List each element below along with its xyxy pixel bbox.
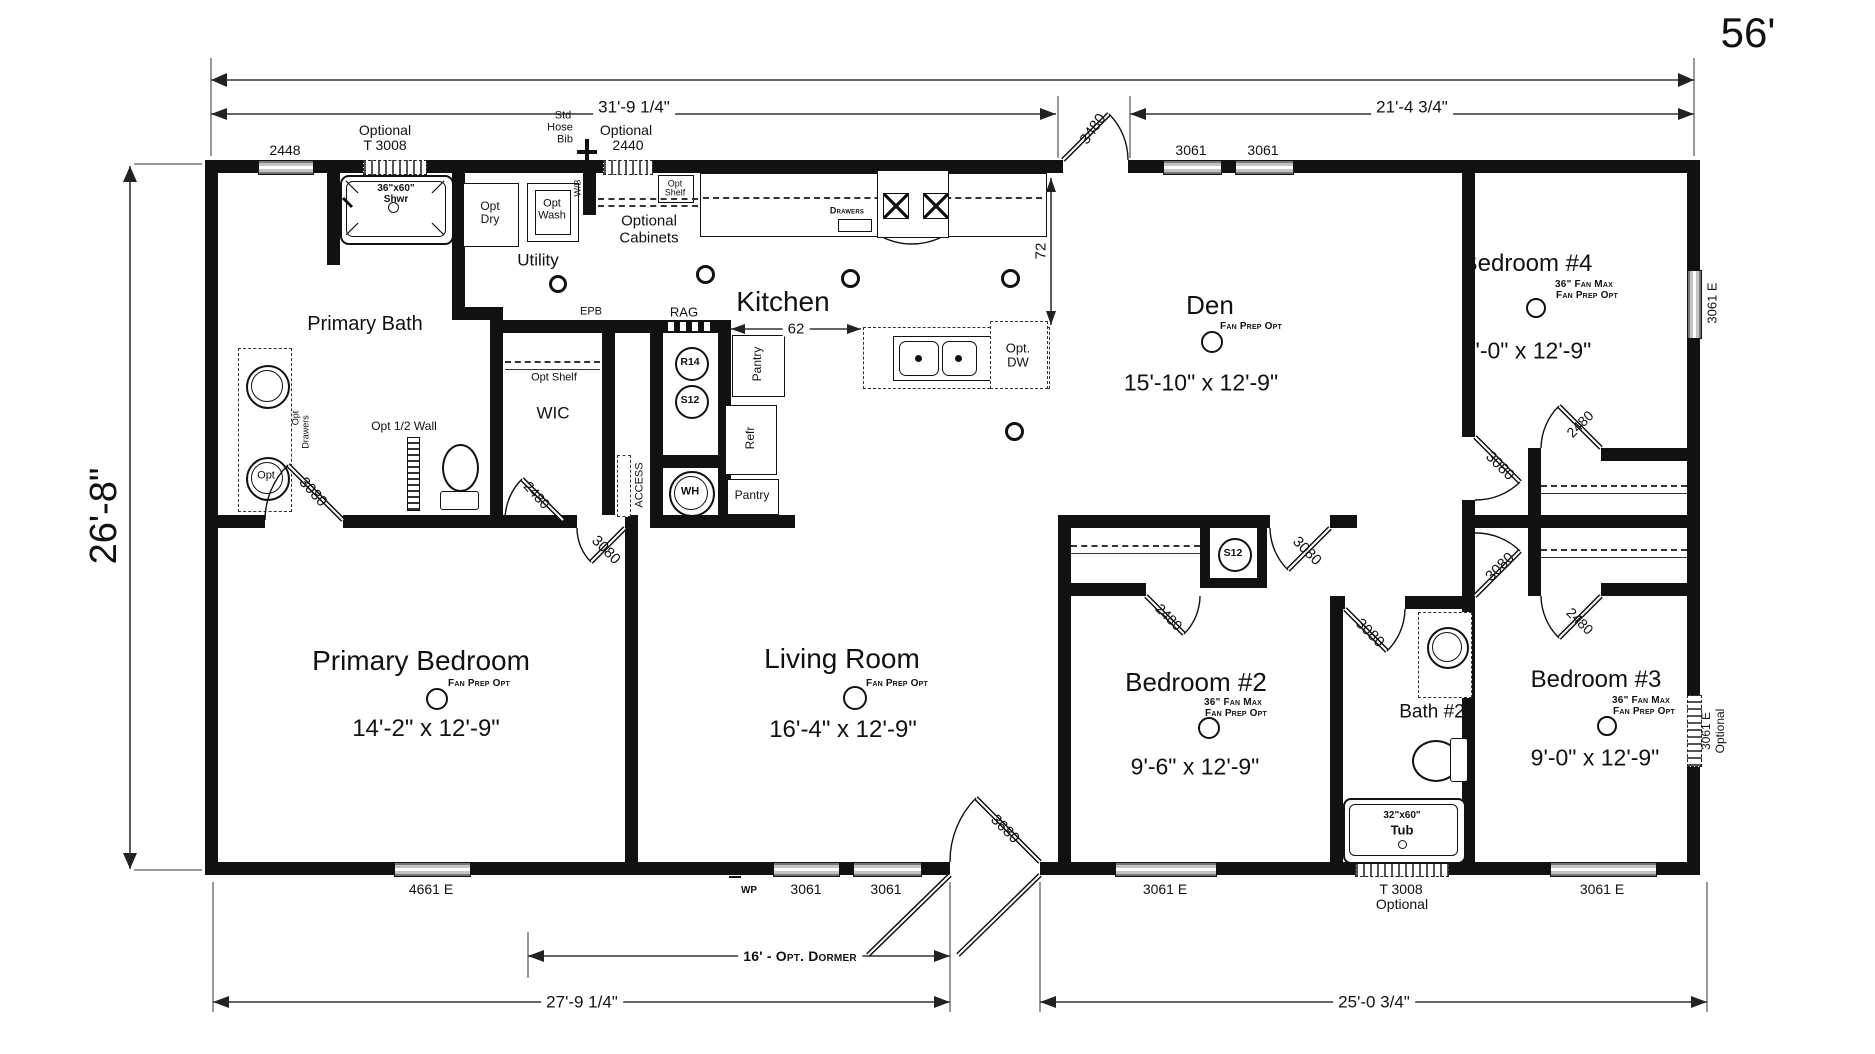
dim-top-right: 21'-4 3/4" [1371,99,1453,116]
window-3061e-bedroom4 [1687,270,1702,339]
sink2-opt-label: Opt [257,471,275,482]
door-label-3080-den-hall: 3080 [1290,534,1324,568]
window-label-3061e-b3r-2: Optional [1714,709,1726,754]
wic-shelf-label: Opt Shelf [528,373,580,384]
window-label-t3008-2: T 3008 [363,138,406,152]
fan-note2-bedroom2: Fan Prep Opt [1205,709,1267,719]
wp-label: WP [741,886,757,896]
window-label-2440-1: Optional [600,123,652,137]
window-label-3061-den1: 3061 [1175,143,1206,157]
vanity-label-drawers: Drawers [302,415,311,449]
window-3061-den-1 [1163,160,1222,175]
pbath-toilet-bowl [442,444,479,492]
size-den: 15'-10" x 12'-9" [1124,372,1278,395]
room-label-den: Den [1186,292,1234,318]
door-label-2480-b3-closet: 2480 [1564,605,1596,637]
overall-width-label: 56' [1721,12,1776,54]
room-label-wic: WIC [536,405,569,422]
drawer-stack [838,219,872,232]
wh-label: WH [681,487,699,498]
size-bedroom4: 9'-0" x 12'-9" [1463,340,1592,363]
opt-shelf-label-2: Shelf [665,189,686,198]
epb-label: EPB [580,307,602,318]
door-label-3680: 3680 [988,812,1022,846]
optional-cabinets-label-1: Optional [621,214,677,229]
window-label-t3008-bath-1: T 3008 [1379,882,1422,896]
r14-label: R14 [680,357,699,368]
shower-label-1: 36"x60" [377,184,414,194]
fan-note2-bedroom3: Fan Prep Opt [1613,707,1675,717]
kitchen-light-3 [1001,269,1020,288]
fan-note1-bedroom3: 36" Fan Max [1612,696,1670,706]
fan-circle-bedroom3 [1597,716,1617,736]
vanity-label-opt: Opt [292,411,301,426]
fan-note1-bedroom4: 36" Fan Max [1555,280,1613,290]
door-label-3080-pbath: 3080 [296,475,329,510]
optional-cabinets-dash2 [598,205,698,207]
room-label-bedroom3: Bedroom #3 [1531,668,1662,692]
wb-label: W/B [574,180,583,197]
hose-bib-label-3: Bib [557,135,573,146]
room-label-primary-bedroom: Primary Bedroom [312,647,530,675]
optional-cabinets-dash1 [598,198,698,200]
fan-note-living: Fan Prep Opt [866,679,928,689]
access-label: ACCESS [635,462,646,507]
window-label-3061e-b3r-1: 3061 E [1700,712,1712,750]
optional-cabinets-label-2: Cabinets [619,231,678,246]
hose-bib-label-1: Std [555,111,572,122]
room-label-living: Living Room [764,645,920,673]
window-t3008-optional [363,160,427,175]
opt-dw-label-2: DW [1007,356,1029,369]
door-label-2480-b2: 2480 [1153,601,1185,633]
window-3061-living-2 [853,862,922,877]
fan-note2-bedroom4: Fan Prep Opt [1556,291,1618,301]
s12-label: S12 [681,395,700,406]
door-label-3080-pbed: 3080 [589,533,623,567]
fan-note1-bedroom2: 36" Fan Max [1204,698,1262,708]
window-label-3061e-b3b: 3061 E [1580,882,1624,896]
access-panel [617,455,631,517]
dim-62: 62 [783,322,810,337]
window-label-4661e: 4661 E [409,882,453,896]
window-label-t3008-bath-2: Optional [1376,897,1428,911]
drawers-label: Drawers [830,207,864,216]
fan-note-primary-bedroom: Fan Prep Opt [448,679,510,689]
fan-circle-bedroom2 [1198,717,1220,739]
pantry-lower-label: Pantry [735,489,770,501]
door-label-3480: 3480 [1077,111,1108,147]
window-label-3061-den2: 3061 [1247,143,1278,157]
misc-symbols [343,139,940,877]
window-3061-living-1 [773,862,840,877]
window-label-t3008-1: Optional [359,123,411,137]
room-label-bedroom4: Bedroom #4 [1462,252,1593,276]
room-label-bedroom2: Bedroom #2 [1125,669,1267,695]
window-2448 [258,160,314,175]
dim-dormer: 16' - Opt. Dormer [738,949,862,963]
kitchen-light-1 [696,265,715,284]
dryer-label-2: Dry [481,213,500,225]
fan-note-den: Fan Prep Opt [1220,322,1282,332]
dim-top-left: 31'-9 1/4" [593,99,675,116]
tub-label-2: Tub [1391,824,1414,837]
door-label-3080-bath2: 3080 [1353,616,1387,650]
wic-rod [505,369,600,370]
size-primary-bedroom: 14'-2" x 12'-9" [352,717,500,741]
dryer-label-1: Opt [480,200,499,212]
window-label-3061e-b2: 3061 E [1143,882,1187,896]
dim-bottom-left: 27'-9 1/4" [541,994,623,1011]
fan-circle-living [843,686,867,710]
burner-right [923,193,949,219]
dim-72: 72 [1034,238,1049,265]
fan-circle-primary-bedroom [426,688,448,710]
kitchen-light-2 [841,269,860,288]
tub-label-1: 32"x60" [1383,811,1420,821]
hose-bib-label-2: Hose [547,123,573,134]
room-label-kitchen: Kitchen [736,288,829,316]
pantry-upper-label: Pantry [751,347,763,382]
rag-label: RAG [670,306,698,319]
window-3061e-bedroom2 [1115,862,1217,877]
window-label-3061-lr1: 3061 [790,882,821,896]
tub-drain [1398,840,1407,849]
opt-dw-label-1: Opt. [1006,342,1031,355]
half-wall-label: Opt 1/2 Wall [371,420,437,432]
refrigerator-label: Refr [744,427,756,450]
door-label-3080-b3: 3080 [1483,550,1517,584]
utility-light [549,275,567,293]
pbath-toilet-tank [440,491,479,510]
kitchen-light-4 [1005,422,1024,441]
fan-circle-bedroom4 [1526,298,1546,318]
shower-label-2: Shwr [384,195,408,205]
s12-b2-label: S12 [1224,548,1243,559]
room-label-utility: Utility [517,252,559,269]
floor-plan: 56' 26'-8" 31'-9 1/4" 21'-4 3/4" 27'-9 1… [0,0,1875,1054]
bath2-toilet-tank [1450,738,1468,782]
overall-depth-label: 26'-8" [85,468,123,565]
window-2440-optional [603,160,653,175]
washer-label-2: Wash [538,211,566,222]
window-label-3061-lr2: 3061 [870,882,901,896]
window-label-3061e-b4: 3061 E [1706,282,1719,323]
window-label-2440-2: 2440 [612,138,643,152]
fan-circle-den [1201,331,1223,353]
opt-half-wall [407,437,420,511]
wic-shelf-dashed [505,361,600,363]
upper-cabinets-dashed [703,197,1042,199]
dim-bottom-right: 25'-0 3/4" [1333,994,1415,1011]
size-bedroom2: 9'-6" x 12'-9" [1131,756,1260,779]
burner-left [883,193,909,219]
washer-label-1: Opt [543,199,561,210]
window-3061e-bedroom3 [1550,862,1657,877]
door-label-2480-b4-closet: 2480 [1564,408,1596,440]
size-living: 16'-4" x 12'-9" [769,718,917,742]
door-label-3080-b4: 3080 [1483,449,1517,483]
room-label-bath2: Bath #2 [1399,703,1465,722]
window-4661e [394,862,471,877]
room-label-primary-bath: Primary Bath [307,314,423,334]
window-t3008-bath2 [1355,862,1449,877]
size-bedroom3: 9'-0" x 12'-9" [1531,747,1660,770]
window-label-2448: 2448 [269,143,300,157]
door-label-2480-wic: 2480 [521,479,552,512]
kitchen-counter [700,173,1047,237]
window-3061-den-2 [1235,160,1294,175]
